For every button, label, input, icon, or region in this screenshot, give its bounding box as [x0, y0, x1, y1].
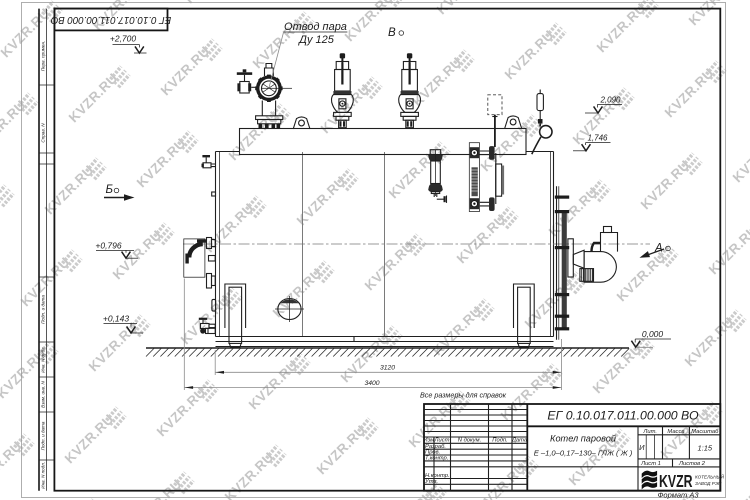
svg-text:0,000: 0,000 [642, 329, 664, 339]
svg-text:Утв.: Утв. [424, 479, 438, 485]
svg-text:Изм: Изм [423, 438, 434, 444]
svg-text:1,746: 1,746 [587, 134, 608, 143]
svg-text:ЗАВОД РЭП: ЗАВОД РЭП [695, 481, 722, 486]
svg-text:Дата: Дата [511, 438, 528, 444]
svg-text:Лит.: Лит. [642, 429, 657, 435]
svg-text:КОТЕЛЬНЫЙ: КОТЕЛЬНЫЙ [695, 473, 725, 480]
svg-text:ЕГ 0.10.017.011.00.000 ВО: ЕГ 0.10.017.011.00.000 ВО [547, 408, 699, 422]
svg-text:Подп. и дата: Подп. и дата [40, 421, 45, 450]
svg-text:Подп.: Подп. [492, 438, 507, 444]
svg-text:1:15: 1:15 [697, 444, 712, 453]
svg-text:2,090: 2,090 [599, 96, 621, 105]
svg-text:Отвод пара: Отвод пара [284, 21, 347, 33]
svg-text:Взам. инв. N: Взам. инв. N [40, 380, 45, 407]
svg-text:Листов 2: Листов 2 [678, 461, 706, 467]
svg-text:3400: 3400 [364, 380, 379, 387]
svg-text:+2,700: +2,700 [110, 34, 137, 44]
svg-text:Е –1,0–0,17–130– ГЛЖ ( Ж ): Е –1,0–0,17–130– ГЛЖ ( Ж ) [534, 448, 633, 457]
svg-text:Подп. и дата: Подп. и дата [40, 295, 45, 324]
svg-text:N докум.: N докум. [458, 438, 481, 444]
svg-text:3120: 3120 [380, 364, 395, 371]
svg-text:Справ. N: Справ. N [40, 123, 45, 143]
svg-text:Формат А3: Формат А3 [657, 490, 699, 499]
svg-text:Ду 125: Ду 125 [297, 34, 335, 46]
svg-text:Лист: Лист [434, 438, 450, 444]
svg-text:Все размеры для справок: Все размеры для справок [420, 391, 507, 400]
svg-text:Перв. примен.: Перв. примен. [40, 41, 45, 72]
svg-text:KVZR: KVZR [659, 471, 693, 491]
svg-text:+0,143: +0,143 [103, 313, 130, 323]
svg-text:Б: Б [106, 184, 114, 196]
svg-text:Масса: Масса [667, 429, 685, 435]
svg-text:Масштаб: Масштаб [691, 429, 719, 435]
svg-text:Т.контр.: Т.контр. [425, 456, 448, 462]
svg-text:ЕГ 0.10.017.011.00.000 ВО: ЕГ 0.10.017.011.00.000 ВО [50, 14, 171, 25]
svg-text:+0,796: +0,796 [95, 240, 122, 250]
svg-text:Инв. N дубл.: Инв. N дубл. [40, 346, 45, 373]
svg-text:И: И [639, 443, 645, 452]
svg-text:В: В [388, 27, 396, 39]
svg-text:Котел паровой: Котел паровой [550, 434, 616, 444]
svg-text:Инв. N подл.: Инв. N подл. [40, 462, 45, 489]
svg-text:Лист 1: Лист 1 [640, 461, 661, 467]
